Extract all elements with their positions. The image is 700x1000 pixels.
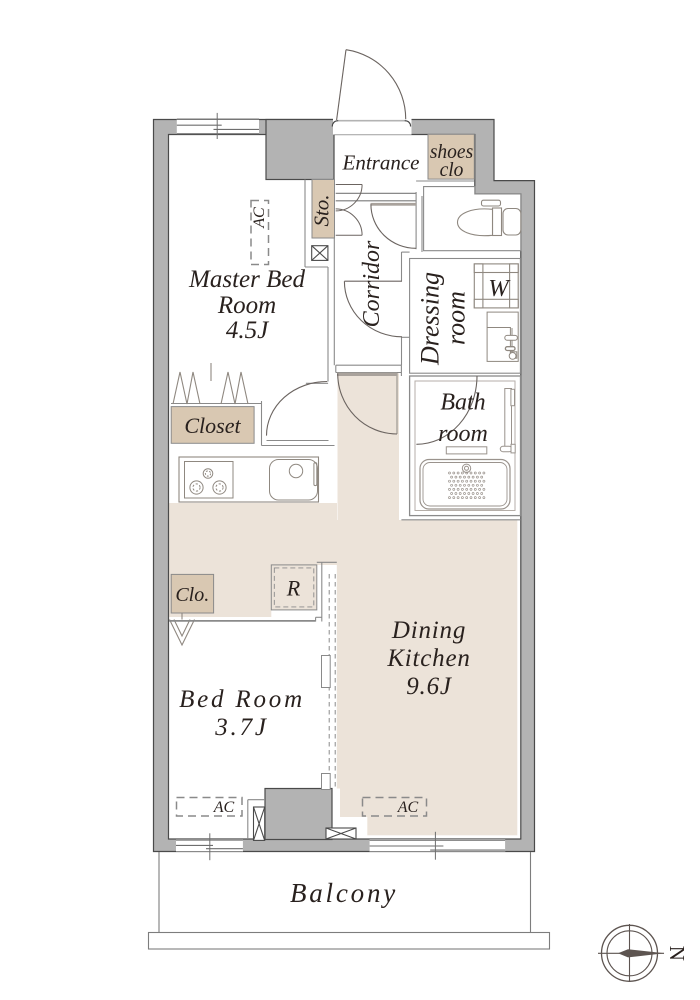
svg-text:Bath: Bath — [440, 390, 485, 416]
svg-text:Corridor: Corridor — [359, 240, 385, 327]
svg-text:AC: AC — [397, 799, 419, 816]
svg-text:4.5J: 4.5J — [226, 317, 270, 344]
svg-text:Kitchen: Kitchen — [386, 645, 470, 672]
svg-text:W: W — [488, 275, 511, 302]
svg-text:room: room — [442, 291, 471, 345]
svg-text:Master Bed: Master Bed — [188, 266, 305, 293]
svg-text:R: R — [286, 576, 301, 601]
svg-text:Entrance: Entrance — [342, 151, 420, 175]
svg-text:Clo.: Clo. — [175, 584, 209, 606]
svg-text:3.7J: 3.7J — [214, 714, 269, 741]
svg-text:room: room — [438, 421, 488, 447]
svg-text:Dining: Dining — [391, 617, 466, 644]
svg-text:Closet: Closet — [184, 413, 241, 438]
svg-text:Balcony: Balcony — [290, 878, 398, 908]
svg-text:clo: clo — [440, 160, 464, 181]
svg-text:Bed Room: Bed Room — [179, 686, 305, 713]
svg-text:N: N — [665, 946, 689, 961]
svg-text:Sto.: Sto. — [310, 194, 334, 226]
svg-text:AC: AC — [251, 207, 268, 229]
svg-text:AC: AC — [213, 799, 235, 816]
svg-text:Room: Room — [217, 292, 276, 319]
svg-text:9.6J: 9.6J — [406, 673, 453, 700]
svg-text:Dressing: Dressing — [416, 272, 445, 366]
